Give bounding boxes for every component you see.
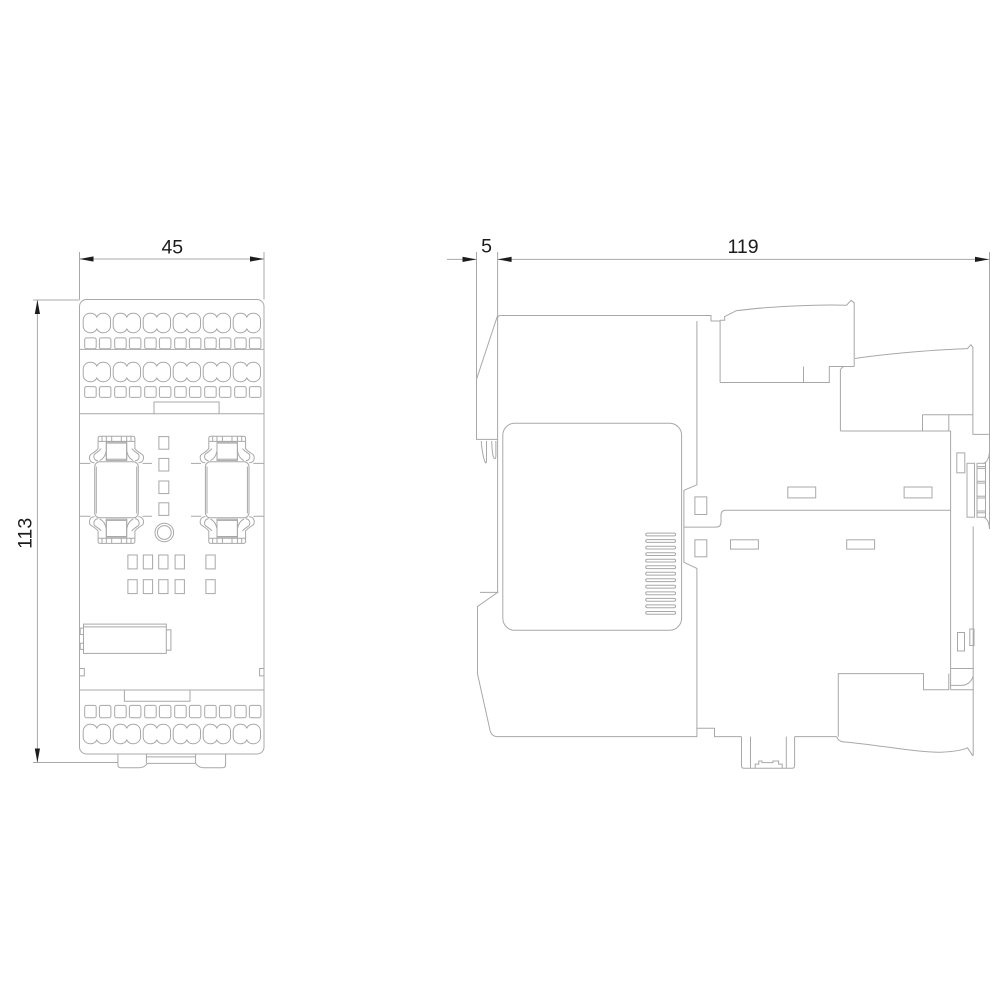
svg-text:45: 45: [161, 237, 183, 259]
svg-text:119: 119: [727, 236, 758, 258]
svg-text:113: 113: [15, 518, 37, 549]
svg-text:5: 5: [481, 236, 492, 258]
